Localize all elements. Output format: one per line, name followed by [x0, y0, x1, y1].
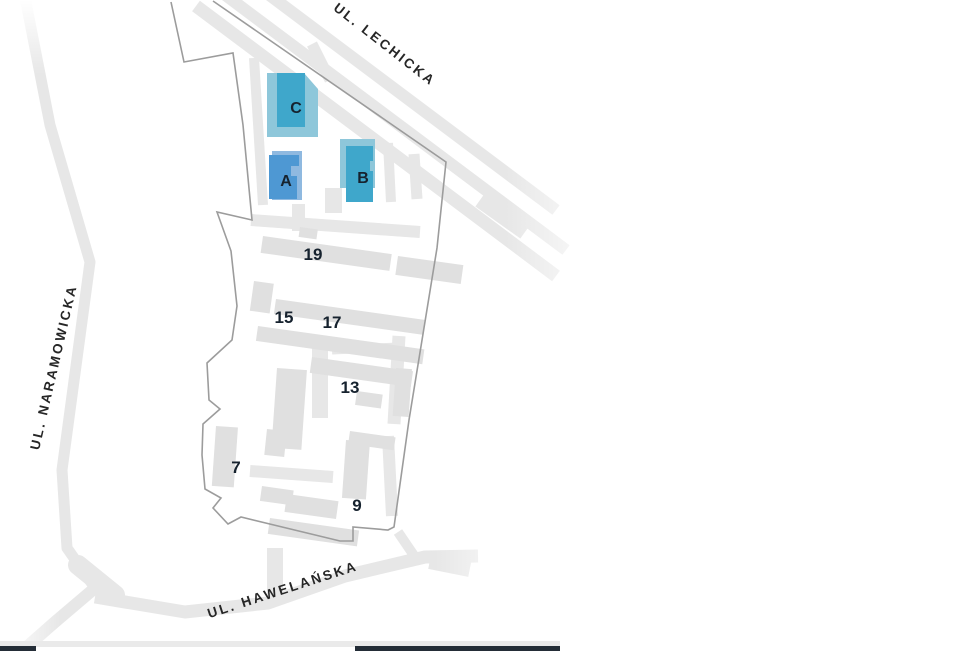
bottom-bar-left-button[interactable] [0, 646, 36, 651]
building-17-label: 17 [323, 313, 342, 332]
road-internal-row7 [250, 471, 333, 477]
building-7-annex [264, 429, 287, 457]
building-15-label: 15 [275, 308, 294, 327]
site-map[interactable]: C A B 19 15 17 13 7 9 UL. LECHICKA UL. N… [0, 0, 969, 651]
building-a-label: A [280, 173, 292, 190]
bottom-bar-right-button[interactable] [355, 646, 560, 651]
building-13-block-east [393, 368, 412, 417]
building-7-label: 7 [231, 458, 240, 477]
site-plan-page: C A B 19 15 17 13 7 9 UL. LECHICKA UL. N… [0, 0, 969, 651]
road-internal-far-east [414, 154, 417, 199]
building-13-label: 13 [341, 378, 360, 397]
building-19-label: 19 [304, 245, 323, 264]
road-internal-east-b [388, 143, 391, 202]
building-c-label: C [290, 100, 302, 117]
building-9-block [342, 440, 370, 500]
building-15-annex [250, 281, 274, 313]
building-9-label: 9 [352, 496, 361, 515]
fade-lechicka-end [505, 130, 615, 300]
building-b-label: B [357, 170, 369, 187]
fade-hawelanska-end [435, 525, 535, 595]
building-7-block [212, 426, 238, 487]
fade-top-left [0, 0, 100, 75]
